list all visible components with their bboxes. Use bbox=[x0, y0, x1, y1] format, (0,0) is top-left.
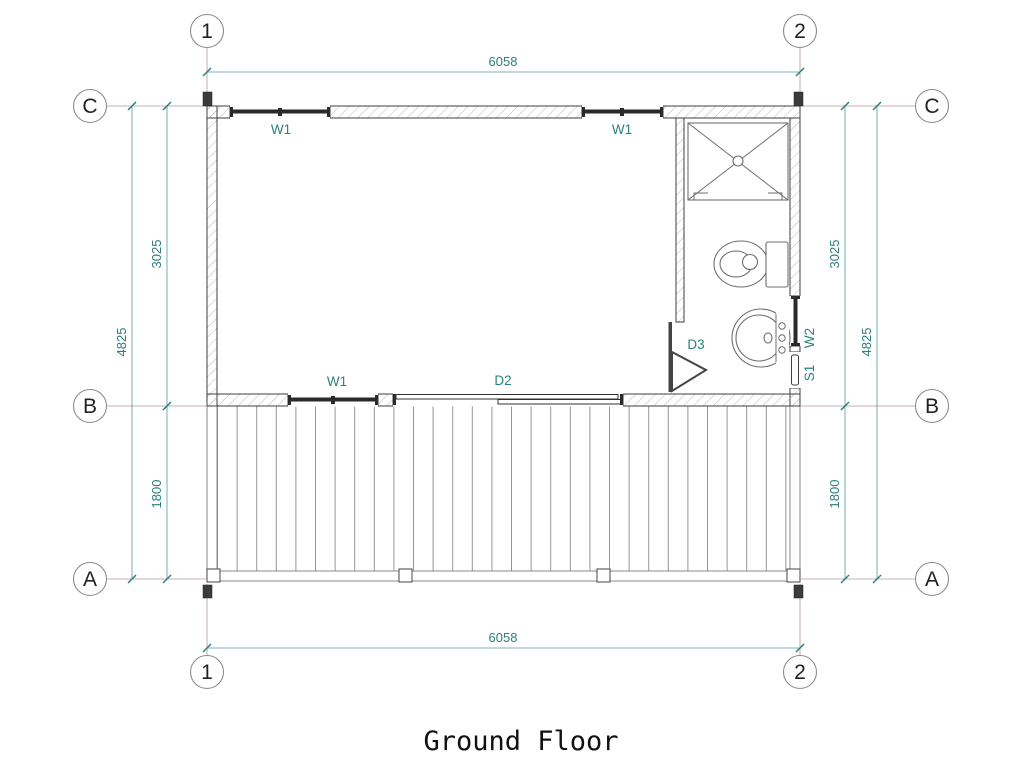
dim-left-deck-depth: 1800 bbox=[149, 480, 164, 509]
toilet-flush bbox=[743, 255, 758, 270]
sliding-door-d2 bbox=[393, 394, 623, 407]
sink-drain bbox=[764, 333, 772, 343]
grid-label-rowa-left: A bbox=[83, 568, 97, 591]
grid-label-rowb-left: B bbox=[83, 395, 97, 418]
floor-plan-drawing: 6058 6058 3025 4825 1800 3025 4825 1800 bbox=[0, 0, 1024, 768]
grid-label-rowc-right: C bbox=[924, 95, 939, 118]
label-bathroom-door: D3 bbox=[687, 337, 704, 352]
dim-top-width: 6058 bbox=[489, 54, 518, 69]
window-w1-top-right bbox=[582, 106, 663, 119]
grid-label-col1-bottom: 1 bbox=[201, 661, 213, 684]
label-window-bottom: W1 bbox=[327, 374, 347, 389]
toilet bbox=[714, 241, 788, 287]
bottom-wall-segment bbox=[623, 394, 800, 406]
grid-label-rowb-right: B bbox=[925, 395, 939, 418]
service-hatch-s1 bbox=[790, 352, 801, 388]
deck-terrace bbox=[207, 406, 800, 582]
deck-post bbox=[787, 569, 800, 582]
window-w2-right bbox=[790, 296, 801, 346]
deck-planks bbox=[217, 406, 790, 571]
deck-post bbox=[597, 569, 610, 582]
shower-drain bbox=[733, 156, 743, 166]
page-title: Ground Floor bbox=[423, 726, 618, 757]
dim-right-room-depth: 3025 bbox=[827, 240, 842, 269]
window-w1-bottom bbox=[288, 394, 378, 407]
deck-post bbox=[399, 569, 412, 582]
window-w1-top-left bbox=[230, 106, 330, 119]
top-wall-segment bbox=[663, 106, 800, 118]
sink bbox=[732, 309, 790, 367]
floor-plan-page: 6058 6058 3025 4825 1800 3025 4825 1800 bbox=[0, 0, 1024, 768]
dim-right-total-depth: 4825 bbox=[859, 328, 874, 357]
bottom-wall-segment bbox=[207, 394, 288, 406]
grid-label-rowa-right: A bbox=[925, 568, 939, 591]
label-right-window: W2 bbox=[802, 328, 817, 348]
dim-right-deck-depth: 1800 bbox=[827, 480, 842, 509]
top-wall-segment bbox=[330, 106, 582, 118]
bottom-wall-segment bbox=[378, 394, 393, 406]
label-window-top-right: W1 bbox=[612, 122, 632, 137]
shower-tray bbox=[688, 123, 788, 200]
right-wall-segment bbox=[790, 118, 800, 296]
right-wall-segment bbox=[790, 346, 800, 352]
dim-bottom-width: 6058 bbox=[489, 630, 518, 645]
deck-post bbox=[207, 569, 220, 582]
grid-label-rowc-left: C bbox=[82, 95, 97, 118]
grid-label-col2-bottom: 2 bbox=[794, 661, 806, 684]
label-service-hatch: S1 bbox=[802, 365, 817, 382]
bathroom-door-d3 bbox=[669, 322, 707, 392]
left-wall bbox=[207, 106, 217, 406]
label-sliding-door: D2 bbox=[494, 373, 511, 388]
grid-label-col2-top: 2 bbox=[794, 20, 806, 43]
bathroom-partition-wall bbox=[676, 118, 684, 322]
grid-label-col1-top: 1 bbox=[201, 20, 213, 43]
label-window-top-left: W1 bbox=[271, 122, 291, 137]
toilet-tank bbox=[766, 242, 788, 287]
dim-left-total-depth: 4825 bbox=[114, 328, 129, 357]
dim-left-room-depth: 3025 bbox=[149, 240, 164, 269]
